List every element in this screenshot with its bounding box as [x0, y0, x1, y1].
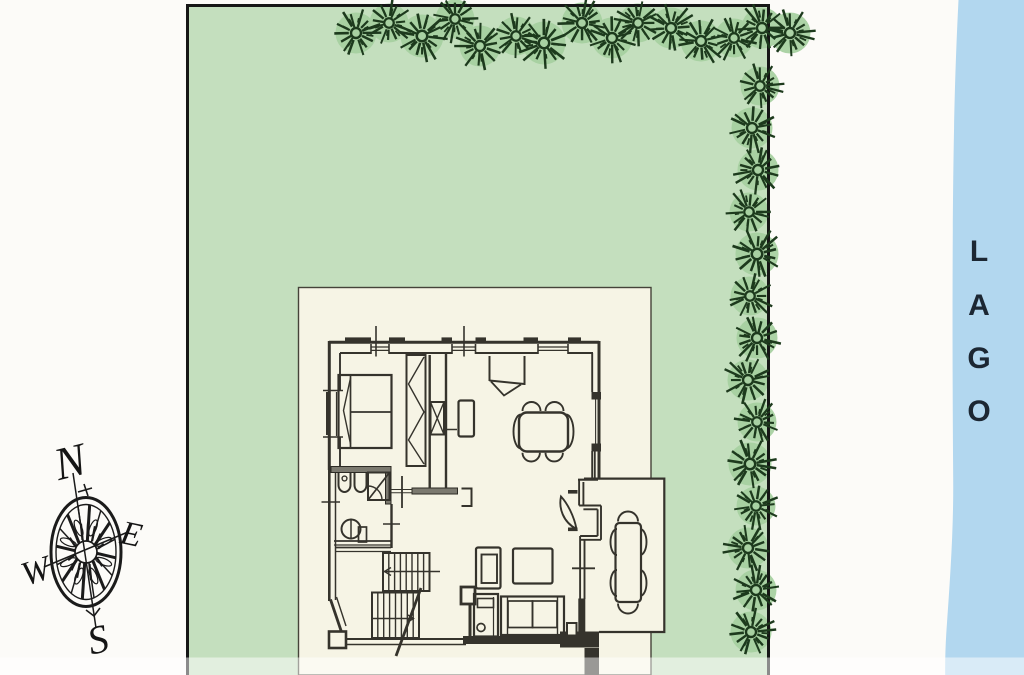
svg-text:G: G: [967, 342, 990, 375]
svg-text:L: L: [970, 235, 988, 268]
svg-text:A: A: [968, 289, 990, 322]
svg-text:O: O: [967, 395, 990, 428]
